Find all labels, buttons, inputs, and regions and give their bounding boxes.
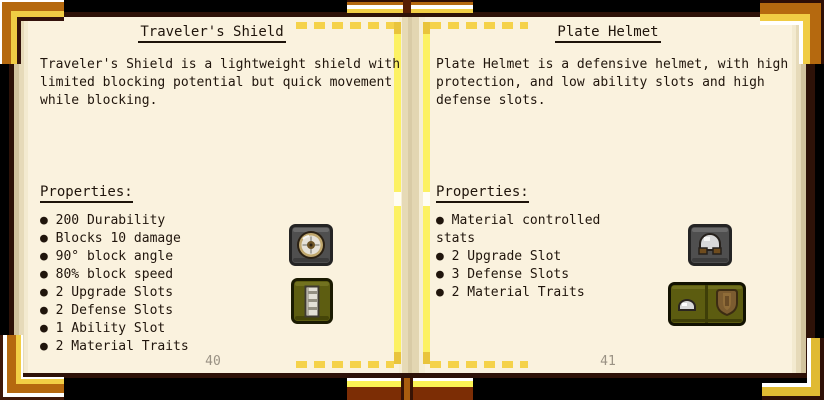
right-page-number: 41	[578, 354, 638, 369]
right-page-border-corner-top	[423, 22, 430, 34]
right-page-properties-label: Properties:	[436, 184, 529, 203]
property-item: ● 1 Ability Slot	[40, 320, 290, 338]
left-page-border-corner-top	[394, 22, 401, 34]
shield-pattern-item-icon[interactable]	[291, 278, 333, 324]
left-page-title-text: Traveler's Shield	[138, 24, 285, 43]
corner-clasp-bottom-right	[762, 338, 824, 400]
travelers-shield-item-icon[interactable]	[289, 224, 333, 266]
right-page-border-corner-bottom	[423, 352, 430, 364]
spine-clasp-top	[347, 0, 473, 13]
helmet-parts-slots-icon[interactable]	[668, 282, 746, 326]
left-page-description: Traveler's Shield is a lightweight shiel…	[40, 56, 412, 110]
left-page-title: Traveler's Shield	[36, 24, 388, 43]
property-item: ● Material controlled stats	[436, 212, 636, 248]
left-page-properties-label: Properties:	[40, 184, 133, 203]
spine-cover-bottom-divider	[401, 378, 413, 400]
tinkers-book-screen: Traveler's Shield Traveler's Shield is a…	[0, 0, 824, 400]
property-item: ● 2 Upgrade Slot	[436, 248, 636, 266]
right-page-title: Plate Helmet	[432, 24, 784, 43]
spine-clasp-top-divider	[403, 0, 411, 13]
property-item: ● 3 Defense Slots	[436, 266, 636, 284]
property-item: ● 80% block speed	[40, 266, 290, 284]
left-page-number: 40	[183, 354, 243, 369]
left-page-bottom-dashed-border	[296, 361, 394, 368]
left-page-properties-list: ● 200 Durability● Blocks 10 damage● 90° …	[40, 212, 290, 356]
property-item: ● 2 Material Traits	[40, 338, 290, 356]
spine-cover-bottom	[347, 378, 473, 400]
plate-helmet-item-icon[interactable]	[688, 224, 732, 266]
right-page-description: Plate Helmet is a defensive helmet, with…	[436, 56, 808, 110]
property-item: ● 2 Material Traits	[436, 284, 636, 302]
property-item: ● 2 Upgrade Slots	[40, 284, 290, 302]
right-page-properties-list: ● Material controlled stats● 2 Upgrade S…	[436, 212, 636, 302]
left-page-border-corner-bottom	[394, 352, 401, 364]
left-page-border-gap	[394, 192, 401, 206]
right-page-bottom-dashed-border	[430, 361, 528, 368]
property-item: ● 2 Defense Slots	[40, 302, 290, 320]
property-item: ● 90° block angle	[40, 248, 290, 266]
property-item: ● 200 Durability	[40, 212, 290, 230]
right-page-title-text: Plate Helmet	[555, 24, 660, 43]
right-page-border-gap	[423, 192, 430, 206]
property-item: ● Blocks 10 damage	[40, 230, 290, 248]
page-edge-left	[14, 17, 28, 373]
